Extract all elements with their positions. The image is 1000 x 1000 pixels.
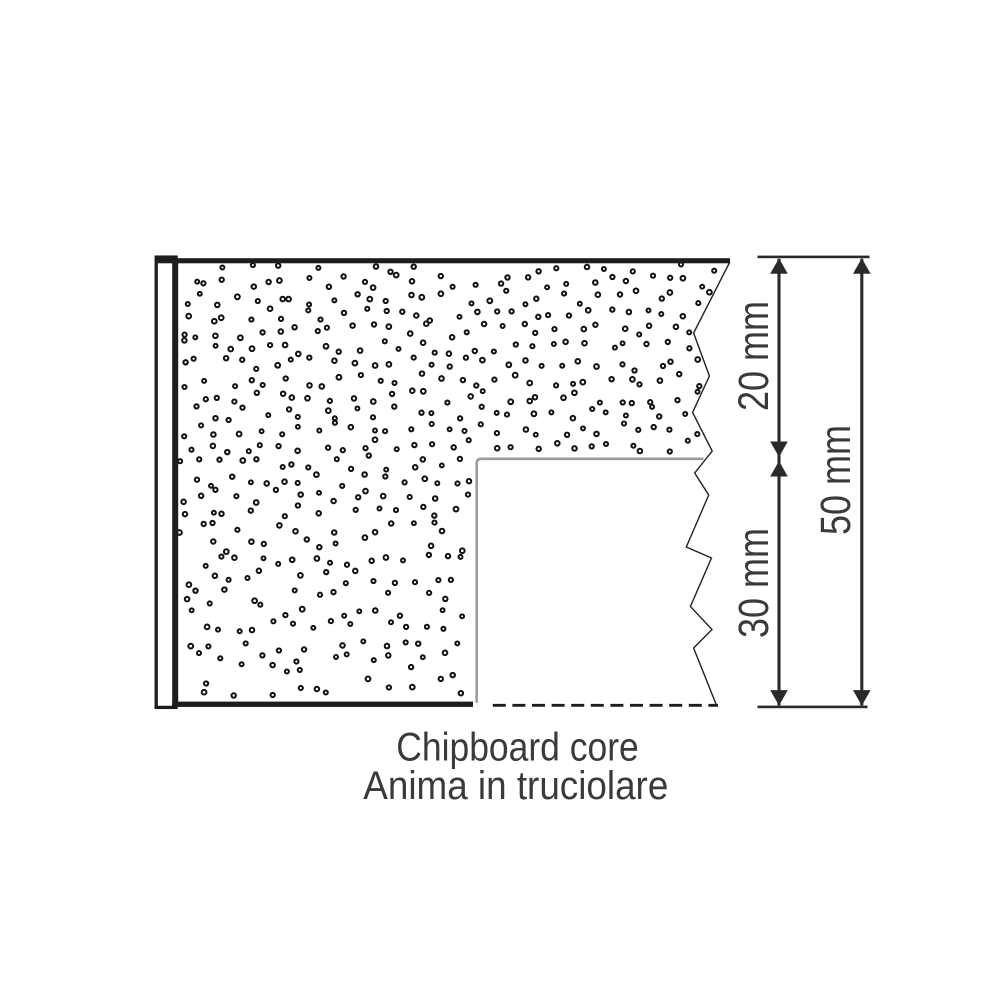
- svg-text:Chipboard core: Chipboard core: [396, 726, 639, 770]
- svg-text:30 mm: 30 mm: [730, 528, 778, 638]
- svg-text:20 mm: 20 mm: [730, 301, 778, 411]
- svg-text:50 mm: 50 mm: [812, 425, 860, 535]
- svg-text:Anima in truciolare: Anima in truciolare: [363, 764, 668, 808]
